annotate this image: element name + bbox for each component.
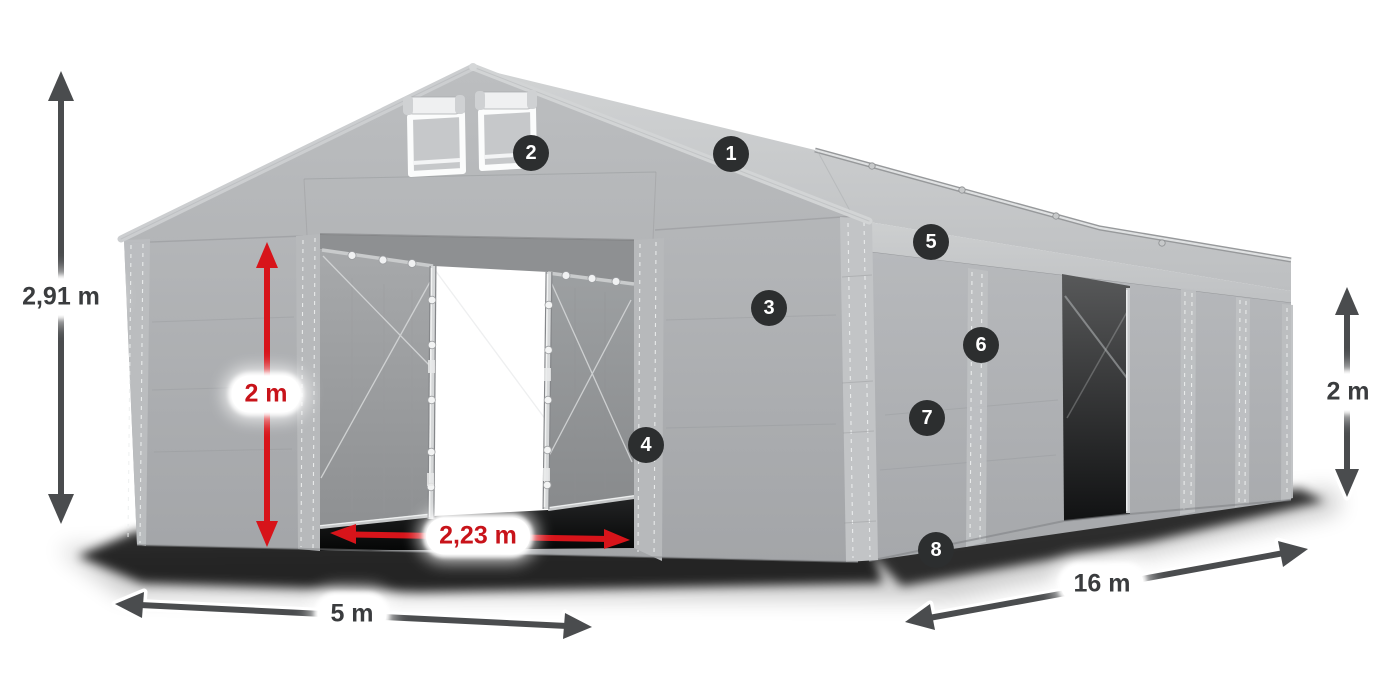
feature-marker-1: 1 — [713, 136, 749, 172]
feature-marker-8: 8 — [918, 532, 954, 568]
length-label: 16 m — [1061, 566, 1144, 603]
feature-marker-5: 5 — [913, 224, 949, 260]
feature-marker-2: 2 — [513, 135, 549, 171]
feature-marker-7: 7 — [909, 400, 945, 436]
feature-marker-3: 3 — [751, 290, 787, 326]
side-height-label: 2 m — [1313, 374, 1382, 411]
feature-marker-4: 4 — [628, 427, 664, 463]
clearance-height-label: 2 m — [231, 376, 300, 413]
total-height-label: 2,91 m — [9, 279, 113, 316]
left-door-panel — [320, 249, 434, 528]
feature-marker-6: 6 — [963, 327, 999, 363]
door-width-label: 2,23 m — [426, 518, 530, 555]
front-door-opening — [320, 234, 634, 551]
tent-illustration — [0, 0, 1400, 700]
tent-dimension-diagram: 2,91 m 2 m 2,23 m 5 m 16 m 2 m 1 2 3 4 5… — [0, 0, 1400, 700]
right-door-panel — [548, 272, 634, 510]
side-door-opening — [1062, 274, 1130, 521]
width-label: 5 m — [317, 596, 386, 633]
